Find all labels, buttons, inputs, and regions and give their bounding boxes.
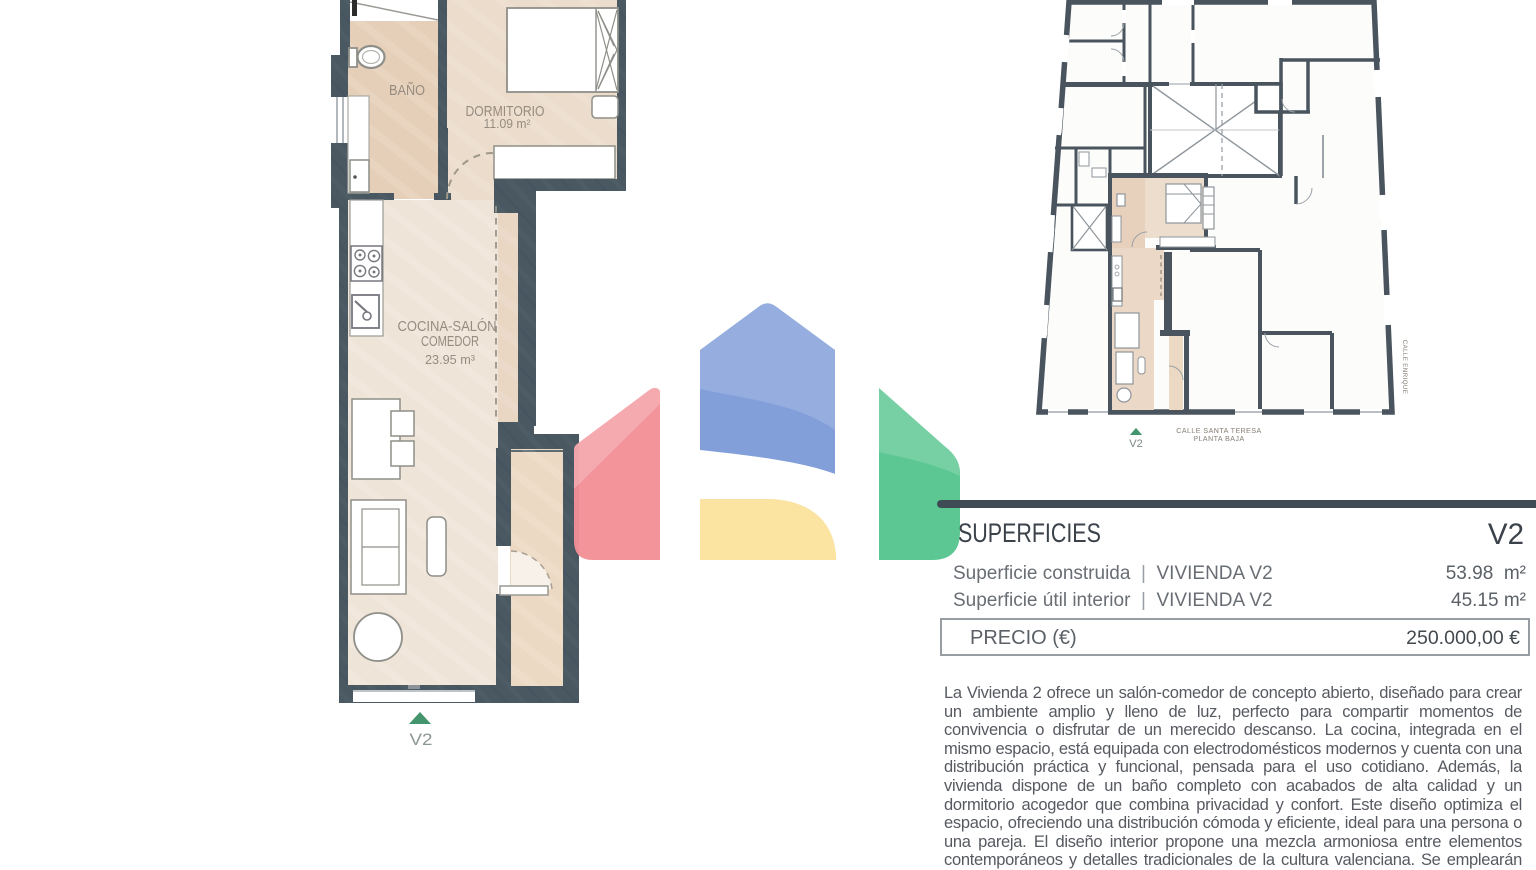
svg-text:BAÑO: BAÑO <box>389 82 425 99</box>
svg-text:V2: V2 <box>1129 438 1142 450</box>
svg-text:COMEDOR: COMEDOR <box>421 334 479 350</box>
svg-text:23.95 m³: 23.95 m³ <box>425 352 476 367</box>
svg-text:CALLE ENRIQUE: CALLE ENRIQUE <box>1401 340 1407 395</box>
svg-text:11.09 m²: 11.09 m² <box>484 116 532 131</box>
svg-text:PLANTA BAJA: PLANTA BAJA <box>1193 436 1244 443</box>
svg-text:COCINA-SALÓN: COCINA-SALÓN <box>398 318 497 335</box>
svg-text:V2: V2 <box>410 730 433 749</box>
svg-text:CALLE SANTA TERESA: CALLE SANTA TERESA <box>1176 428 1261 435</box>
